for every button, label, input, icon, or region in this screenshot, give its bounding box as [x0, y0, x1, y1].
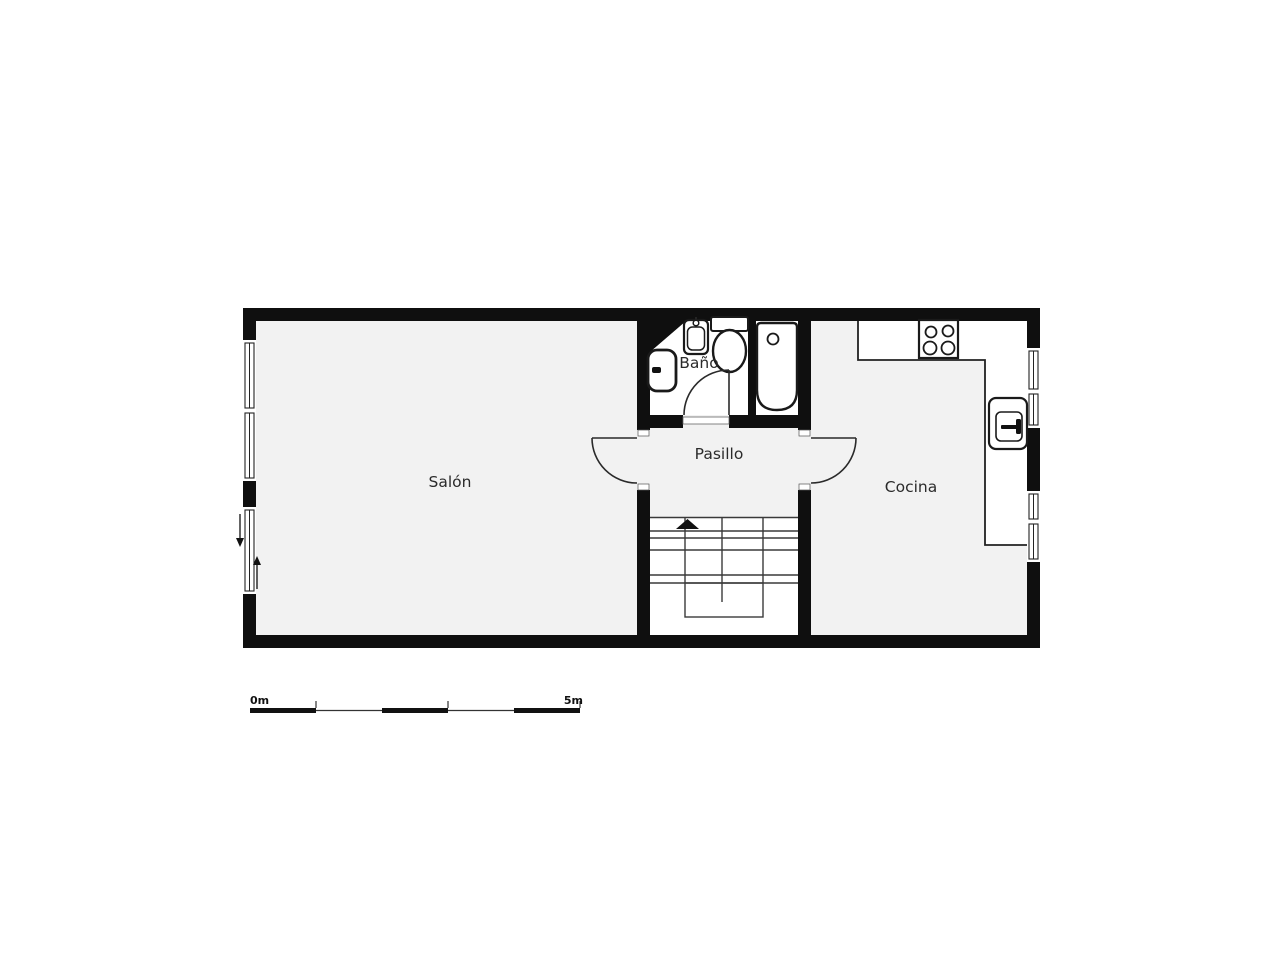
- kitchen-sink-icon: [989, 398, 1027, 449]
- scale-segment: [250, 708, 316, 713]
- wall-bottom: [243, 635, 1040, 648]
- washbasin-icon: [684, 317, 708, 354]
- wall-right-mid-pier: [1027, 428, 1040, 491]
- scale-segment: [382, 708, 448, 713]
- scale-start-label: 0m: [250, 694, 269, 707]
- wall-bathtub-niche: [748, 321, 756, 415]
- bano-door-threshold: [683, 417, 729, 424]
- entry-arrow-down-icon: [236, 514, 244, 547]
- scale-end-label: 5m: [564, 694, 583, 707]
- door-jamb: [799, 430, 810, 436]
- hob-four-burners-icon: [919, 320, 958, 358]
- wall-left-lower: [243, 594, 256, 648]
- wall-right-upper: [1027, 308, 1040, 348]
- floor-plan-drawing: Salón Pasillo Baño Cocina 0m 5m: [0, 0, 1280, 960]
- wall-left-upper: [243, 308, 256, 340]
- wall-left-mid-pier: [243, 481, 256, 507]
- floor-plan-page: Salón Pasillo Baño Cocina 0m 5m: [0, 0, 1280, 960]
- room-label-bano: Baño: [679, 354, 718, 372]
- wall-right-lower: [1027, 562, 1040, 648]
- bidet-icon: [648, 350, 676, 391]
- door-jamb: [638, 484, 649, 490]
- room-label-pasillo: Pasillo: [695, 445, 744, 463]
- wall-bano-south-right: [729, 415, 798, 428]
- door-jamb: [638, 430, 649, 436]
- wall-pasillo-cocina-upper: [798, 321, 811, 430]
- wall-salon-pasillo-lower: [637, 490, 650, 635]
- scale-segment: [514, 708, 580, 713]
- door-jamb: [799, 484, 810, 490]
- scale-bar: 0m 5m: [250, 694, 583, 713]
- wall-bano-south-left: [650, 415, 683, 428]
- room-label-salon: Salón: [429, 473, 472, 491]
- bathtub-icon: [757, 323, 797, 410]
- room-label-cocina: Cocina: [885, 478, 937, 496]
- wall-pasillo-cocina-lower: [798, 490, 811, 635]
